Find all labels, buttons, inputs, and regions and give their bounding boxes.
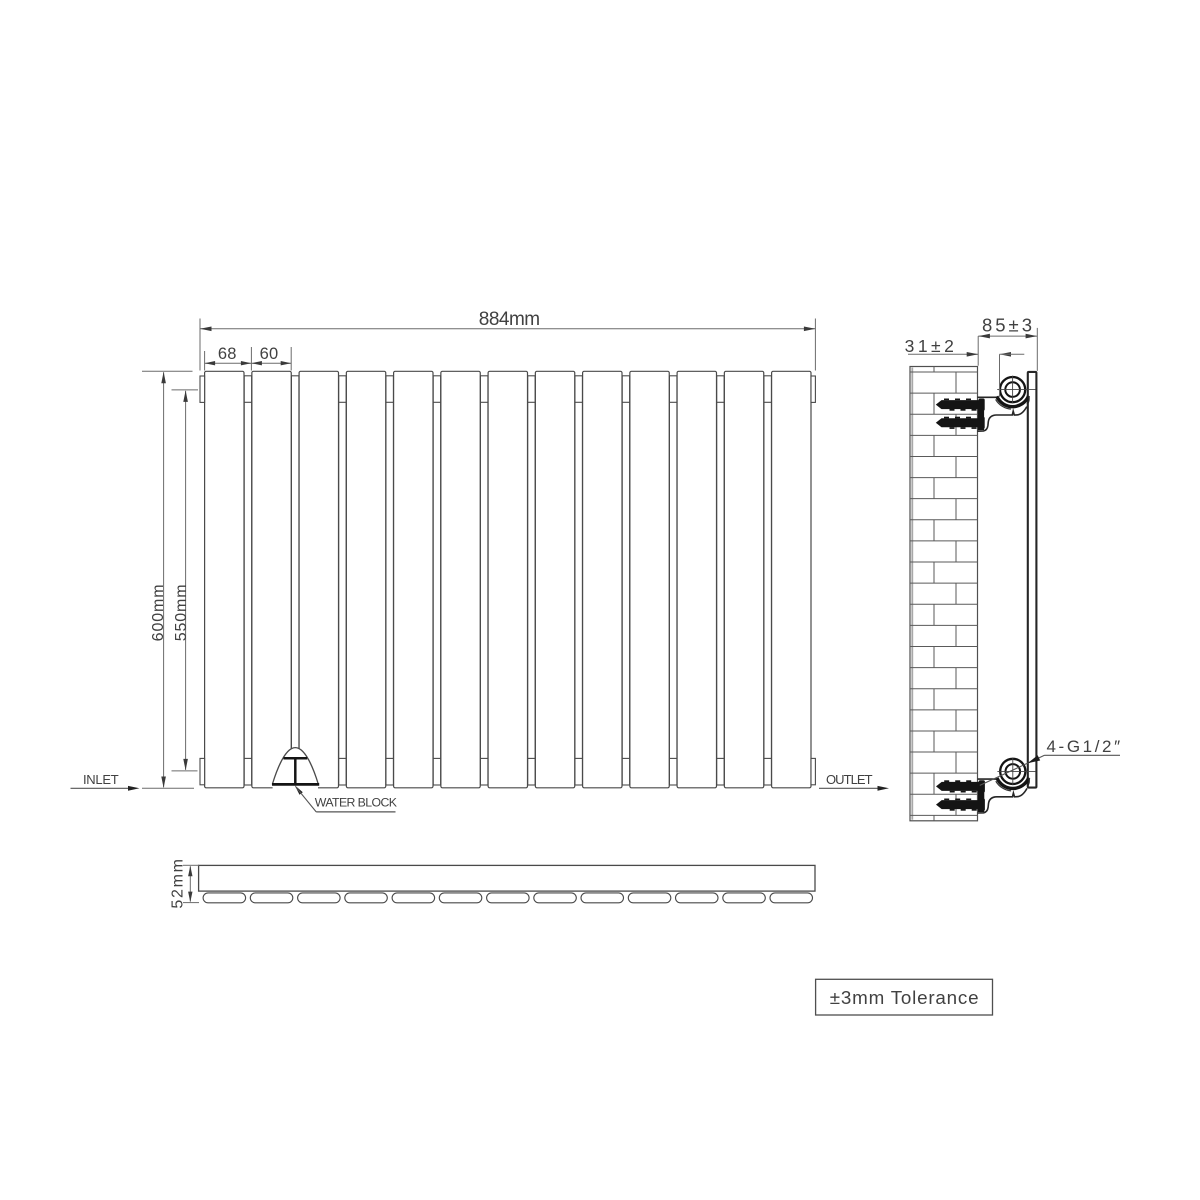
svg-text:WATER BLOCK: WATER BLOCK <box>315 795 398 809</box>
svg-text:550mm: 550mm <box>173 584 190 642</box>
svg-text:60: 60 <box>260 345 279 363</box>
svg-text:52mm: 52mm <box>169 857 186 908</box>
svg-text:OUTLET: OUTLET <box>826 772 873 787</box>
svg-text:INLET: INLET <box>83 772 119 787</box>
svg-text:85±3: 85±3 <box>982 315 1035 336</box>
svg-text:600mm: 600mm <box>150 584 167 642</box>
svg-text:31±2: 31±2 <box>905 336 958 356</box>
svg-text:884mm: 884mm <box>479 309 540 330</box>
svg-text:±3mm Tolerance: ±3mm Tolerance <box>830 987 980 1008</box>
svg-text:68: 68 <box>218 345 237 363</box>
svg-text:4-G1/2″: 4-G1/2″ <box>1047 737 1123 756</box>
